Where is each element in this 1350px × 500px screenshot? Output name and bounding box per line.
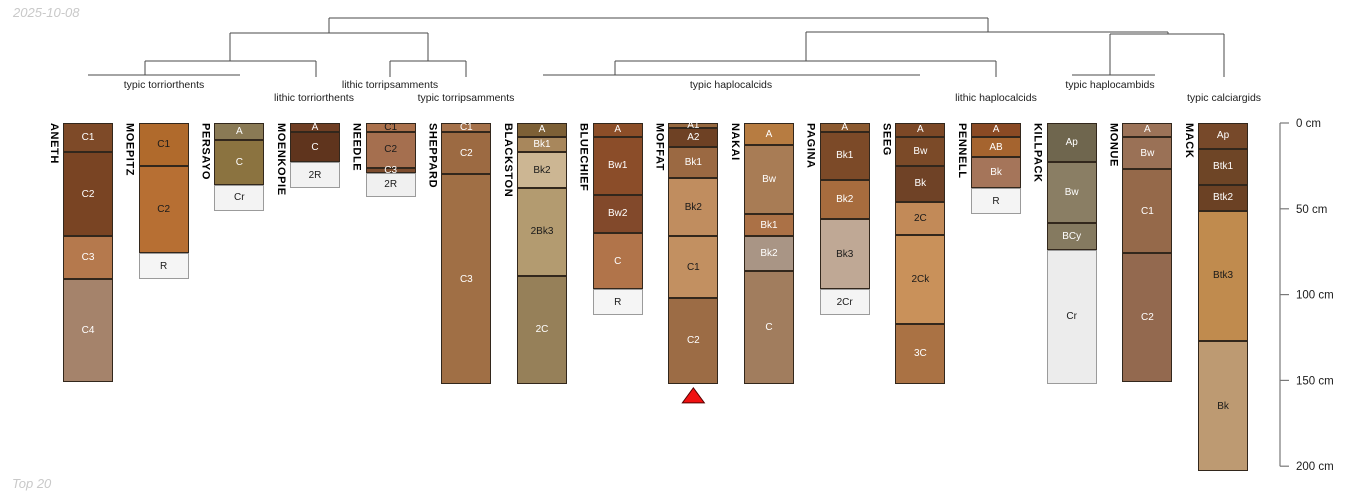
profile-name-label: BLUECHIEF — [578, 123, 590, 191]
horizon-bw: Bw — [1047, 162, 1097, 222]
horizon-bk1: Bk1 — [744, 214, 794, 236]
profile-name-label: ANETH — [48, 123, 60, 164]
group-label: typic haplocalcids — [690, 79, 772, 91]
horizon-label: 2R — [384, 179, 397, 190]
horizon-label: C — [614, 256, 621, 267]
horizon-label: C2 — [157, 204, 170, 215]
horizon-bcy: BCy — [1047, 223, 1097, 250]
profile-name-label: NAKAI — [729, 123, 741, 161]
horizon-a: A — [971, 123, 1021, 137]
horizon-label: AB — [989, 142, 1002, 153]
horizon-label: Btk2 — [1213, 192, 1233, 203]
horizon-a: A — [1122, 123, 1172, 137]
profile-name-label: MOEPITZ — [124, 123, 136, 176]
horizon-cr: Cr — [214, 185, 264, 211]
horizon-2bk3: 2Bk3 — [517, 188, 567, 276]
horizon-a2: A2 — [668, 128, 718, 147]
horizon-bk2: Bk2 — [668, 178, 718, 236]
horizon-2cr: 2Cr — [820, 289, 870, 315]
horizon-c3: C3 — [63, 236, 113, 279]
horizon-c: C — [593, 233, 643, 290]
group-label: lithic torriorthents — [274, 92, 354, 104]
soil-profile-dendrogram-plot: 2025-10-08 typic torriorthentslithic tor… — [0, 0, 1350, 500]
horizon-label: Bw — [1140, 148, 1154, 159]
horizon-label: 2C — [914, 213, 927, 224]
horizon-a: A — [744, 123, 794, 145]
horizon-c2: C2 — [63, 152, 113, 236]
depth-axis-tick-label: 0 cm — [1296, 118, 1321, 130]
horizon-label: Bk1 — [760, 220, 777, 231]
horizon-bw: Bw — [895, 137, 945, 166]
horizon-label: 2C — [536, 324, 549, 335]
horizon-bk2: Bk2 — [744, 236, 794, 270]
profile-name-label: NEEDLE — [351, 123, 363, 171]
horizon-label: A — [917, 124, 924, 135]
horizon-2c: 2C — [895, 202, 945, 235]
horizon-label: 2Ck — [911, 274, 929, 285]
horizon-label: Ap — [1066, 137, 1078, 148]
horizon-label: BCy — [1062, 231, 1081, 242]
group-label: typic calciargids — [1187, 92, 1261, 104]
horizon-label: 3C — [914, 348, 927, 359]
group-label: lithic haplocalcids — [955, 92, 1037, 104]
horizon-c1: C1 — [63, 123, 113, 152]
horizon-label: Bk — [990, 167, 1002, 178]
horizon-label: C3 — [82, 252, 95, 263]
horizon-bk: Bk — [1198, 341, 1248, 471]
depth-axis-tick-label: 200 cm — [1296, 461, 1334, 473]
horizon-label: A — [1144, 124, 1151, 135]
horizon-ap: Ap — [1198, 123, 1248, 149]
depth-axis-tick-label: 100 cm — [1296, 290, 1334, 302]
horizon-label: Btk3 — [1213, 270, 1233, 281]
horizon-c: C — [744, 271, 794, 384]
horizon-label: Bk1 — [533, 139, 550, 150]
horizon-ab: AB — [971, 137, 1021, 158]
selected-profile-marker-icon — [682, 388, 704, 403]
horizon-ap: Ap — [1047, 123, 1097, 162]
horizon-label: Bw — [1065, 187, 1079, 198]
group-label: typic torripsamments — [418, 92, 515, 104]
horizon-c2: C2 — [366, 132, 416, 168]
horizon-label: Bk1 — [836, 150, 853, 161]
horizon-3c: 3C — [895, 324, 945, 384]
horizon-a: A — [290, 123, 340, 132]
horizon-label: R — [160, 261, 167, 272]
depth-axis-tick-label: 50 cm — [1296, 204, 1327, 216]
horizon-label: C2 — [687, 335, 700, 346]
horizon-label: Bk2 — [836, 194, 853, 205]
horizon-2c: 2C — [517, 276, 567, 384]
horizon-c2: C2 — [1122, 253, 1172, 382]
horizon-c2: C2 — [441, 132, 491, 175]
horizon-label: Bw — [762, 174, 776, 185]
horizon-label: C3 — [460, 274, 473, 285]
horizon-label: A — [614, 124, 621, 135]
horizon-label: Btk1 — [1213, 161, 1233, 172]
horizon-label: Bk — [915, 178, 927, 189]
horizon-c: C — [290, 132, 340, 163]
horizon-label: Bk3 — [836, 249, 853, 260]
horizon-label: 2Cr — [837, 297, 853, 308]
horizon-bk3: Bk3 — [820, 219, 870, 289]
plot-date-label: 2025-10-08 — [13, 5, 80, 20]
horizon-label: Bk2 — [685, 202, 702, 213]
horizon-btk2: Btk2 — [1198, 185, 1248, 211]
profile-name-label: PERSAYO — [199, 123, 211, 180]
horizon-label: C1 — [157, 139, 170, 150]
horizon-c1: C1 — [441, 123, 491, 132]
horizon-bk1: Bk1 — [668, 147, 718, 178]
horizon-c4: C4 — [63, 279, 113, 382]
group-label: lithic torripsamments — [342, 79, 438, 91]
horizon-label: C1 — [82, 132, 95, 143]
horizon-label: Bk2 — [533, 165, 550, 176]
horizon-a: A — [820, 123, 870, 132]
horizon-c2: C2 — [668, 298, 718, 384]
horizon-c1: C1 — [139, 123, 189, 166]
horizon-label: R — [614, 297, 621, 308]
horizon-label: C1 — [1141, 206, 1154, 217]
profile-name-label: PENNELL — [956, 123, 968, 179]
horizon-cr: Cr — [1047, 250, 1097, 384]
horizon-label: Bk — [1217, 401, 1229, 412]
horizon-bk: Bk — [895, 166, 945, 202]
horizon-r: R — [971, 188, 1021, 214]
horizon-label: 2R — [309, 170, 322, 181]
horizon-c1: C1 — [1122, 169, 1172, 253]
horizon-label: C2 — [460, 148, 473, 159]
horizon-c3: C3 — [441, 174, 491, 383]
horizon-label: 2Bk3 — [531, 226, 554, 237]
horizon-label: C2 — [1141, 312, 1154, 323]
horizon-label: R — [992, 196, 999, 207]
horizon-label: Bw2 — [608, 208, 627, 219]
profile-name-label: SHEPPARD — [426, 123, 438, 188]
horizon-r: R — [139, 253, 189, 279]
profile-name-label: MACK — [1183, 123, 1195, 158]
horizon-c2: C2 — [139, 166, 189, 254]
horizon-a: A — [214, 123, 264, 140]
horizon-bk2: Bk2 — [820, 180, 870, 219]
horizon-2r: 2R — [290, 162, 340, 188]
horizon-label: A — [236, 126, 243, 137]
horizon-label: Bk1 — [685, 157, 702, 168]
profile-name-label: MONUE — [1107, 123, 1119, 167]
group-label: typic torriorthents — [124, 79, 205, 91]
horizon-2ck: 2Ck — [895, 235, 945, 324]
horizon-label: C1 — [687, 262, 700, 273]
horizon-label: C2 — [82, 189, 95, 200]
horizon-a: A — [517, 123, 567, 137]
horizon-bk2: Bk2 — [517, 152, 567, 188]
profile-name-label: PAGINA — [805, 123, 817, 169]
horizon-label: A — [539, 124, 546, 135]
horizon-label: C — [765, 322, 772, 333]
profile-name-label: KILLPACK — [1032, 123, 1044, 183]
horizon-label: Cr — [234, 192, 245, 203]
horizon-label: A — [766, 129, 773, 140]
horizon-bw2: Bw2 — [593, 195, 643, 233]
profile-name-label: MOENKOPIE — [275, 123, 287, 196]
horizon-bw: Bw — [744, 145, 794, 214]
profile-name-label: BLACKSTON — [502, 123, 514, 197]
depth-axis-tick-label: 150 cm — [1296, 375, 1334, 387]
horizon-c1: C1 — [668, 236, 718, 298]
horizon-bk1: Bk1 — [517, 137, 567, 152]
horizon-label: Bk2 — [760, 248, 777, 259]
horizon-label: Cr — [1066, 311, 1077, 322]
group-label: typic haplocambids — [1065, 79, 1154, 91]
horizon-label: A2 — [687, 132, 699, 143]
horizon-bk: Bk — [971, 157, 1021, 188]
horizon-label: Bw1 — [608, 160, 627, 171]
horizon-bw1: Bw1 — [593, 137, 643, 195]
horizon-r: R — [593, 289, 643, 315]
horizon-label: C2 — [384, 144, 397, 155]
horizon-label: C — [236, 157, 243, 168]
horizon-c1: C1 — [366, 123, 416, 132]
horizon-label: C — [311, 142, 318, 153]
horizon-label: A — [993, 124, 1000, 135]
horizon-2r: 2R — [366, 173, 416, 197]
horizon-c: C — [214, 140, 264, 185]
plot-footer-label: Top 20 — [12, 476, 51, 491]
horizon-a: A — [895, 123, 945, 137]
horizon-label: Ap — [1217, 130, 1229, 141]
horizon-label: Bw — [913, 146, 927, 157]
profile-name-label: MOFFAT — [653, 123, 665, 171]
horizon-label: C4 — [82, 325, 95, 336]
horizon-bw: Bw — [1122, 137, 1172, 170]
horizon-btk1: Btk1 — [1198, 149, 1248, 185]
profile-name-label: SEEG — [880, 123, 892, 156]
horizon-bk1: Bk1 — [820, 132, 870, 180]
horizon-btk3: Btk3 — [1198, 211, 1248, 341]
horizon-a: A — [593, 123, 643, 137]
